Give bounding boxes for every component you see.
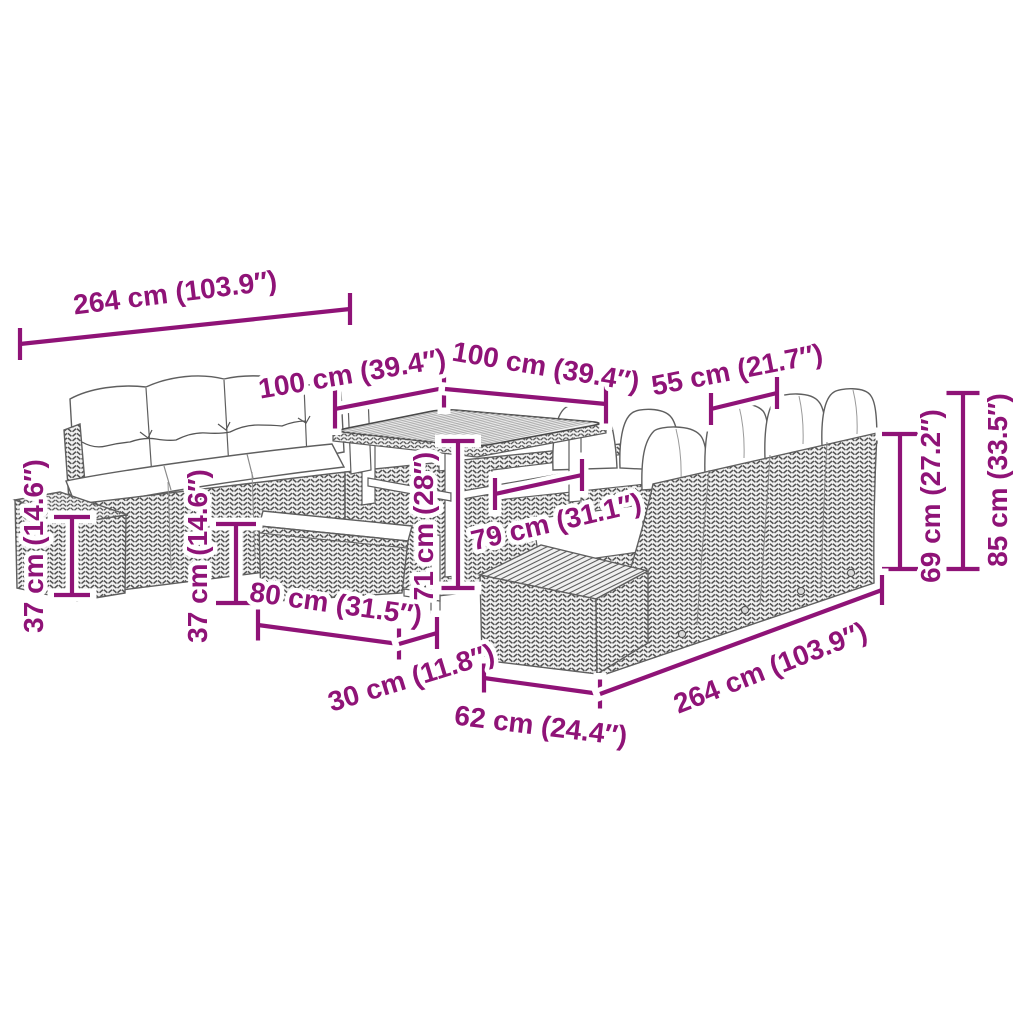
svg-text:37 cm (14.6″): 37 cm (14.6″) (182, 469, 213, 643)
svg-text:85 cm (33.5″): 85 cm (33.5″) (982, 393, 1013, 567)
svg-text:69 cm (27.2″): 69 cm (27.2″) (915, 409, 946, 583)
svg-text:71 cm (28″): 71 cm (28″) (408, 452, 439, 602)
svg-text:37 cm (14.6″): 37 cm (14.6″) (18, 459, 49, 633)
